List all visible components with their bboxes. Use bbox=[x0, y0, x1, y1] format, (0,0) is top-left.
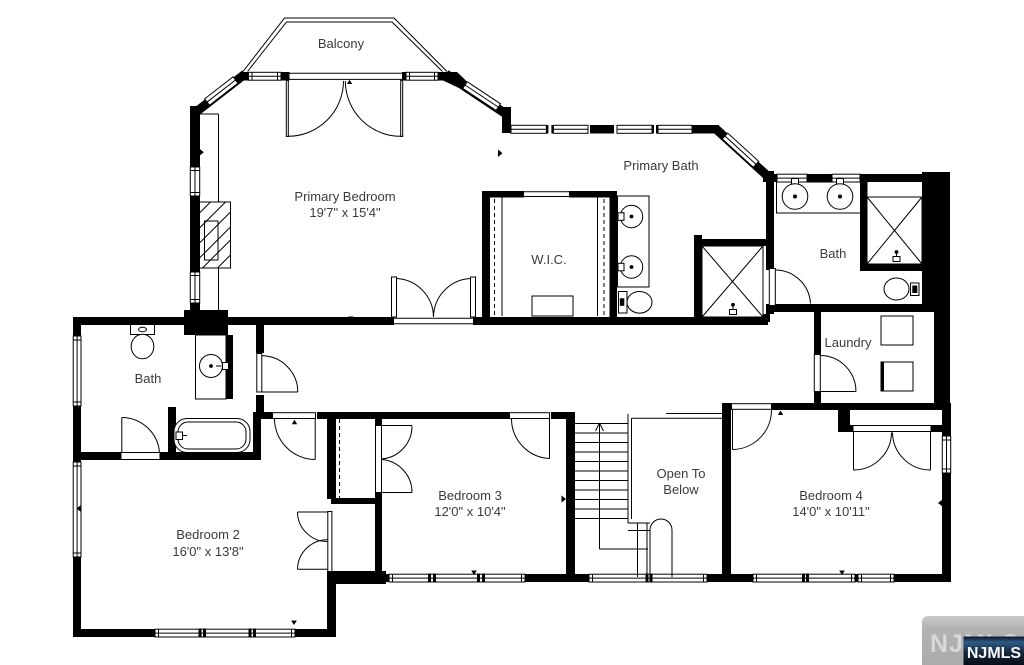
svg-text:Balcony: Balcony bbox=[318, 36, 365, 51]
svg-text:Bath: Bath bbox=[135, 371, 162, 386]
svg-text:12'0" x 10'4": 12'0" x 10'4" bbox=[434, 504, 506, 519]
svg-text:NJMLS: NJMLS bbox=[967, 645, 1022, 662]
svg-text:Open To: Open To bbox=[657, 466, 706, 481]
svg-text:Bedroom 2: Bedroom 2 bbox=[176, 527, 240, 542]
svg-text:16'0" x 13'8": 16'0" x 13'8" bbox=[172, 544, 244, 559]
svg-text:Primary Bath: Primary Bath bbox=[623, 158, 698, 173]
svg-text:Bath: Bath bbox=[820, 246, 847, 261]
svg-text:Bedroom 3: Bedroom 3 bbox=[438, 488, 502, 503]
svg-text:Primary Bedroom: Primary Bedroom bbox=[294, 189, 395, 204]
svg-text:Bedroom 4: Bedroom 4 bbox=[799, 488, 863, 503]
svg-text:14'0" x 10'11": 14'0" x 10'11" bbox=[792, 504, 870, 519]
svg-text:Laundry: Laundry bbox=[825, 335, 872, 350]
svg-text:W.I.C.: W.I.C. bbox=[531, 252, 566, 267]
svg-text:19'7" x 15'4": 19'7" x 15'4" bbox=[309, 205, 381, 220]
svg-text:Below: Below bbox=[663, 482, 699, 497]
